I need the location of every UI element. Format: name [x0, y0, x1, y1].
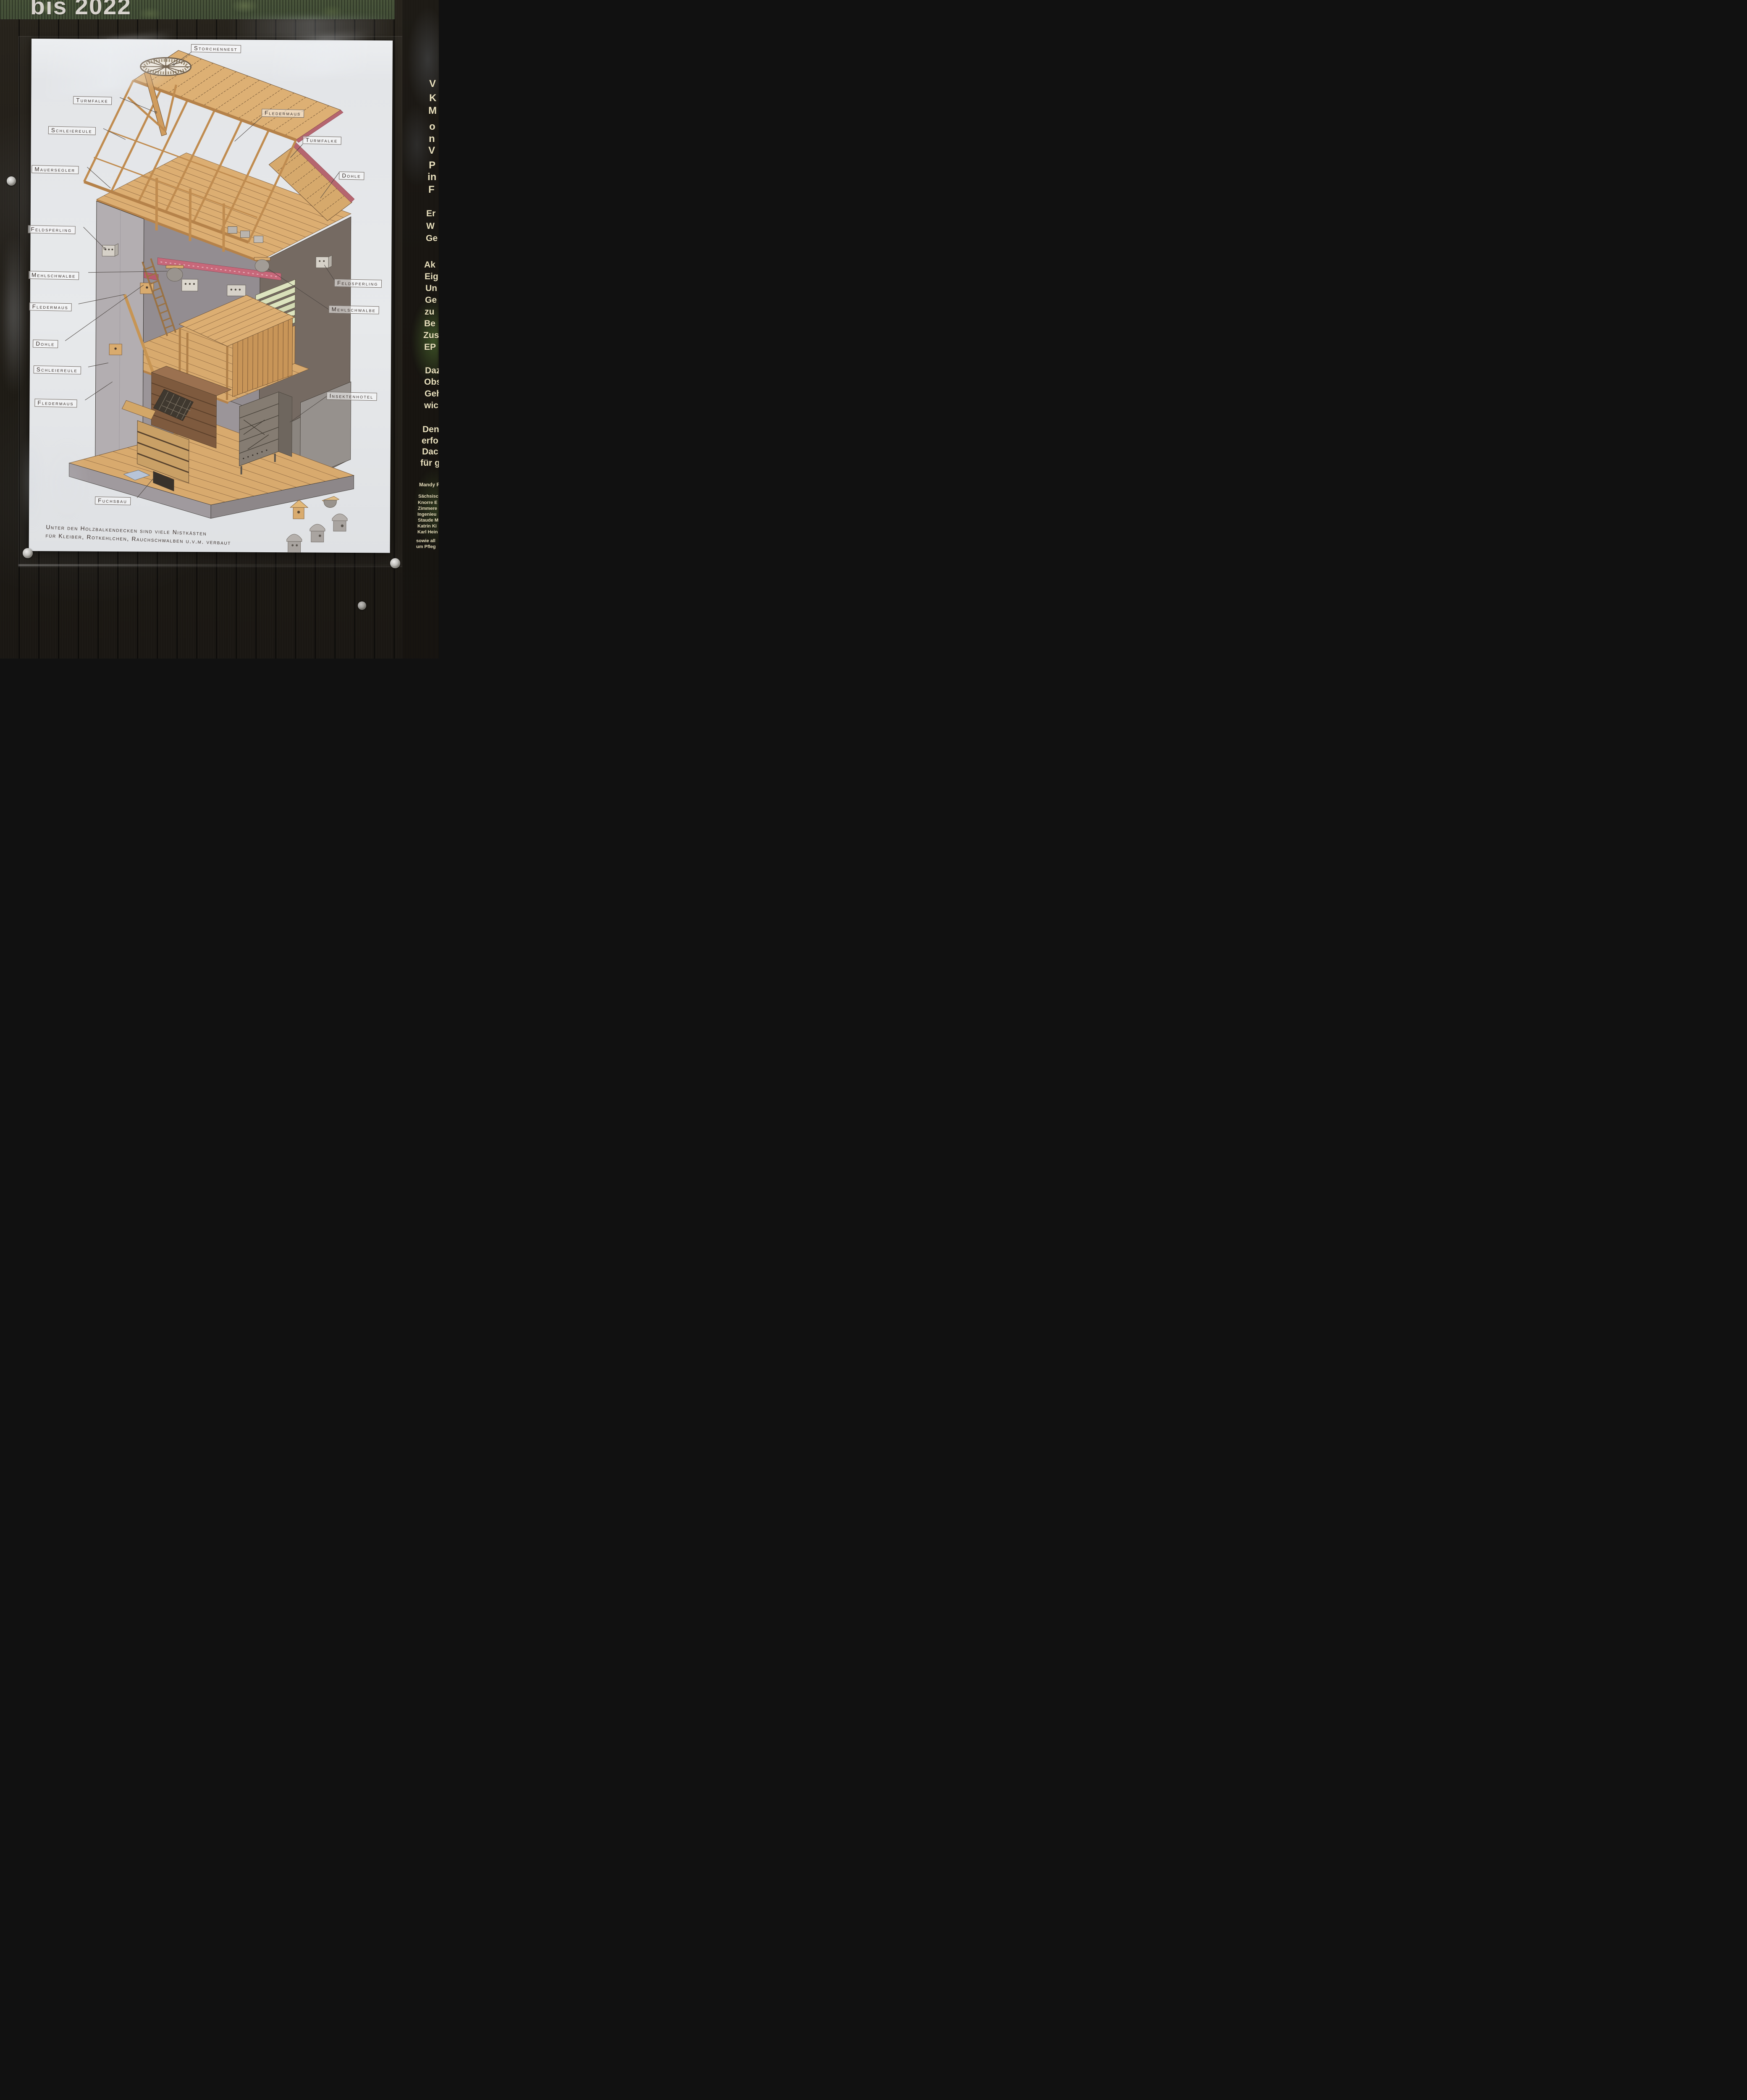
mounting-bolt: [7, 176, 16, 186]
side-text-fragment: Ak: [424, 260, 435, 270]
banner: bis 2022: [0, 0, 395, 19]
side-text-fragment: o: [429, 121, 435, 133]
label-schleiereule-1: Schleiereule: [48, 126, 96, 135]
side-text-fragment: Ge: [426, 234, 438, 244]
side-text-fragment: Daz: [425, 366, 439, 376]
label-feldsperling-1: Feldsperling: [28, 225, 75, 234]
side-text-fragment: Dac: [422, 447, 438, 457]
side-text-fragment: erfo: [422, 436, 438, 446]
side-text-fragment: Eig: [425, 272, 438, 282]
label-mehlschwalbe-1: Mehlschwalbe: [29, 271, 79, 280]
label-dohle-1: Dohle: [33, 340, 58, 348]
side-text-fragment: EP: [424, 342, 436, 352]
side-credit-fragment: Mandy F: [419, 482, 439, 488]
label-turmfalke-1: Turmfalke: [73, 96, 112, 105]
label-schleiereule-2: Schleiereule: [34, 365, 81, 374]
label-fledermaus-2: Fledermaus: [29, 302, 72, 311]
side-credit-fragment: Sächsisc: [418, 494, 438, 499]
nest-box-icons: [287, 496, 348, 553]
side-text-fragment: V: [429, 78, 436, 90]
mounting-bolt: [23, 548, 33, 558]
side-text-fragment: in: [428, 171, 436, 183]
side-text-fragment: F: [428, 184, 435, 196]
side-text-fragment: Un: [425, 283, 437, 294]
side-text-fragment: K: [429, 92, 436, 104]
side-text-fragment: Zus: [423, 331, 439, 341]
side-text-fragment: Obs: [424, 377, 439, 387]
side-text-fragment: M: [428, 105, 437, 117]
banner-title: bis 2022: [30, 0, 131, 19]
side-text-fragment: V: [428, 145, 435, 157]
outer-left-wall: [95, 201, 144, 482]
side-text-fragment: Be: [424, 319, 435, 329]
side-text-fragment: zu: [425, 307, 434, 317]
side-credit-fragment: Knorre E: [418, 500, 437, 505]
label-feldsperling-2: Feldsperling: [334, 279, 382, 288]
side-panel: V K M o n V P in F Er W Ge Ak Eig Un Ge …: [402, 0, 439, 659]
label-storchennest: Storchennest: [191, 44, 241, 53]
side-credit-fragment: Karl Hein: [417, 530, 438, 535]
side-text-fragment: Er: [426, 209, 435, 219]
side-credit-fragment: Katrin Ki: [417, 524, 437, 529]
side-credit-fragment: Zimmere: [418, 506, 437, 511]
label-dohle-2: Dohle: [339, 171, 365, 180]
side-text-fragment: n: [429, 133, 435, 145]
poster: Storchennest Turmfalke Schleiereule Fled…: [29, 39, 393, 553]
label-fuchsbau: Fuchsbau: [95, 496, 131, 505]
label-insektenhotel: Insektenhotel: [326, 392, 377, 401]
photo-of-info-board: bis 2022: [0, 0, 439, 659]
mounting-bolt: [390, 558, 400, 568]
side-credit-fragment: Ingenieu: [417, 512, 436, 517]
label-mehlschwalbe-2: Mehlschwalbe: [328, 305, 379, 315]
label-mauersegler: Mauersegler: [31, 165, 79, 174]
tower-cutaway-illustration: [29, 39, 393, 553]
side-credit-fragment: sowie all: [416, 538, 435, 543]
mounting-bolt: [358, 601, 366, 610]
side-text-fragment: Den: [422, 425, 439, 435]
side-text-fragment: wic: [424, 401, 438, 411]
side-credit-fragment: um Pfleg: [416, 544, 435, 549]
label-turmfalke-2: Turmfalke: [303, 136, 341, 145]
side-text-fragment: P: [429, 160, 435, 171]
side-credit-fragment: Staude M: [418, 518, 438, 523]
side-text-fragment: Geh: [425, 389, 439, 399]
label-fledermaus-3: Fledermaus: [34, 399, 77, 407]
glass-reflection: [227, 17, 395, 39]
side-text-fragment: für g: [420, 458, 439, 468]
label-fledermaus-1: Fledermaus: [262, 109, 304, 118]
glass-bottom-edge: [18, 564, 402, 566]
side-text-fragment: Ge: [425, 295, 437, 305]
side-text-fragment: W: [426, 221, 435, 231]
